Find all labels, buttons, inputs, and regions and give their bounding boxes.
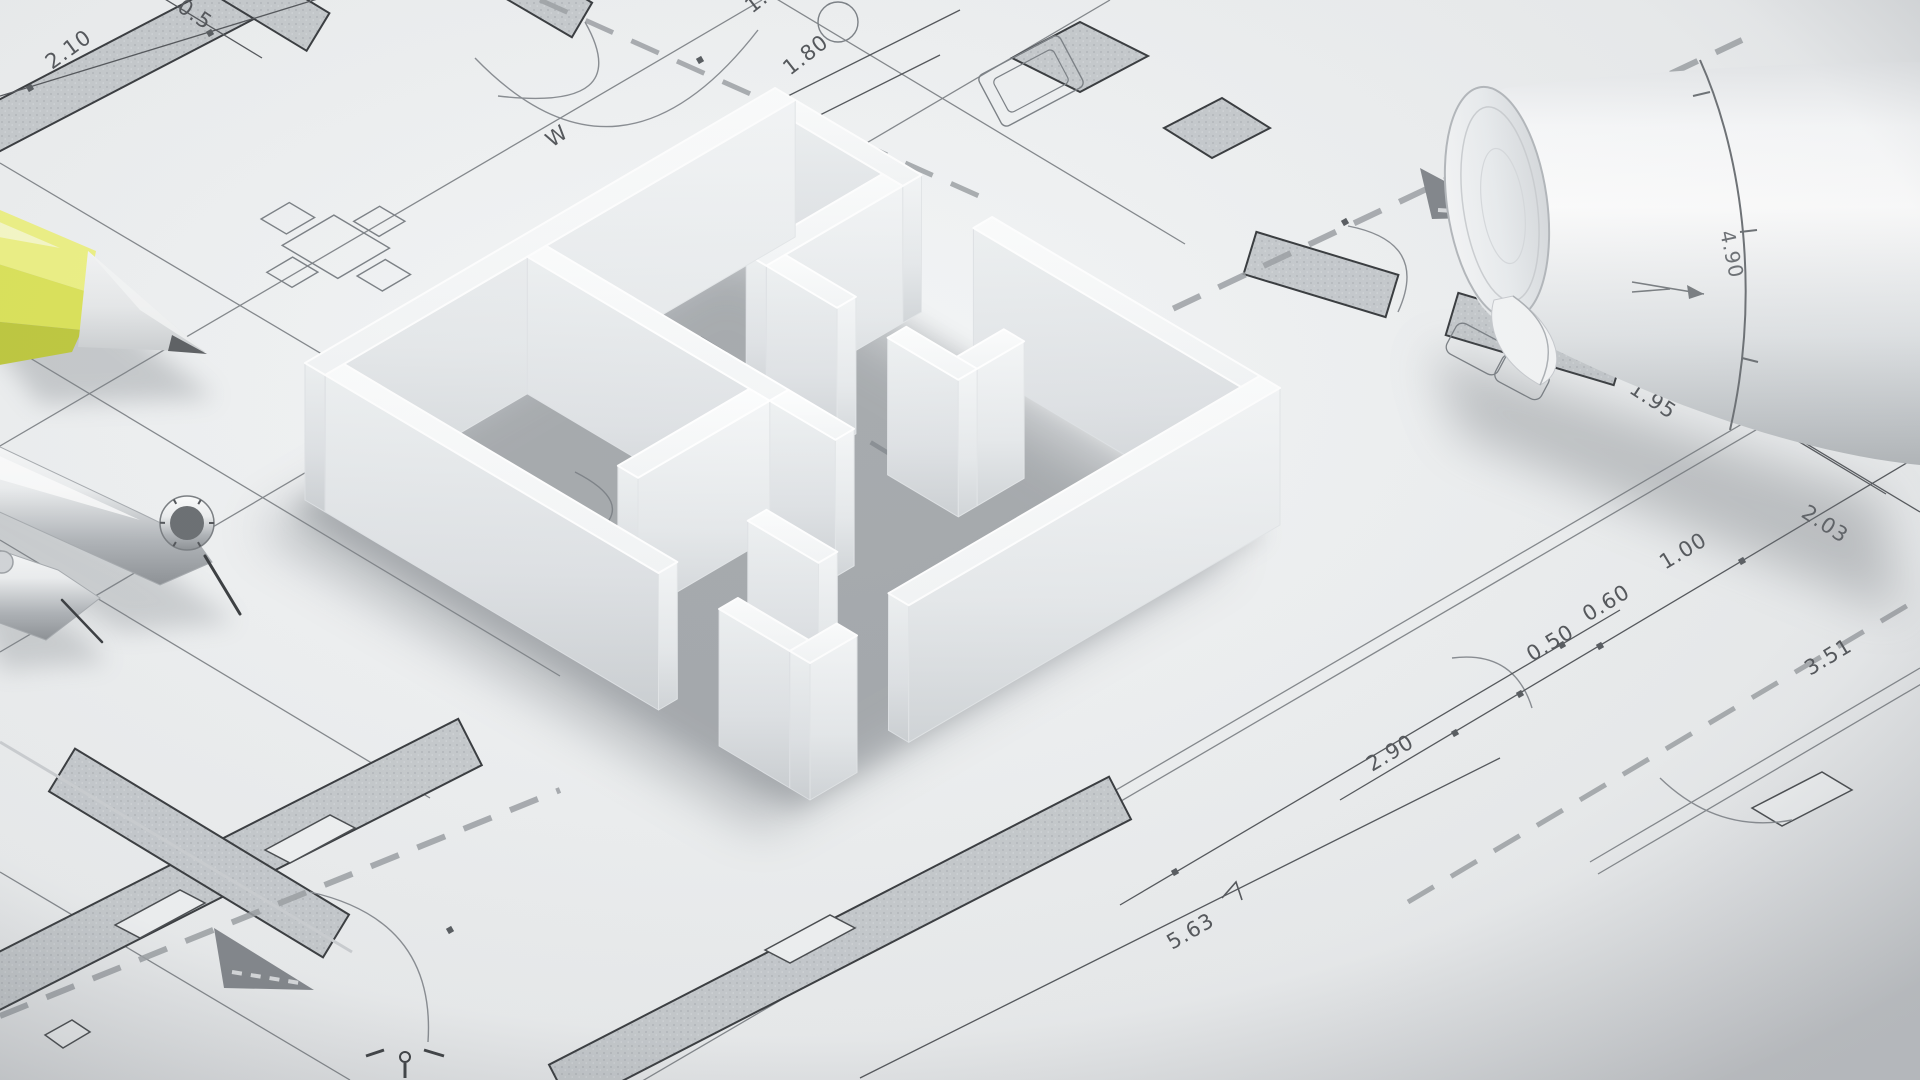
wall-front-face xyxy=(810,636,857,801)
scene-canvas: 2.100.51.931.80W1.952.031.000.600.503.51… xyxy=(0,0,1920,1080)
wall-front-face xyxy=(958,369,977,517)
architectural-blueprint-scene: 2.100.51.931.80W1.952.031.000.600.503.51… xyxy=(0,0,1920,1080)
compass-knob-core xyxy=(170,506,204,540)
model-wall xyxy=(790,624,857,801)
wall-front-face xyxy=(903,175,922,323)
wall-front-face xyxy=(835,429,854,577)
wall-end-face xyxy=(790,651,810,800)
wall-front-face xyxy=(659,562,678,710)
wall-end-face xyxy=(305,363,325,512)
wall-front-face xyxy=(977,341,1024,506)
wall-end-face xyxy=(889,593,909,742)
